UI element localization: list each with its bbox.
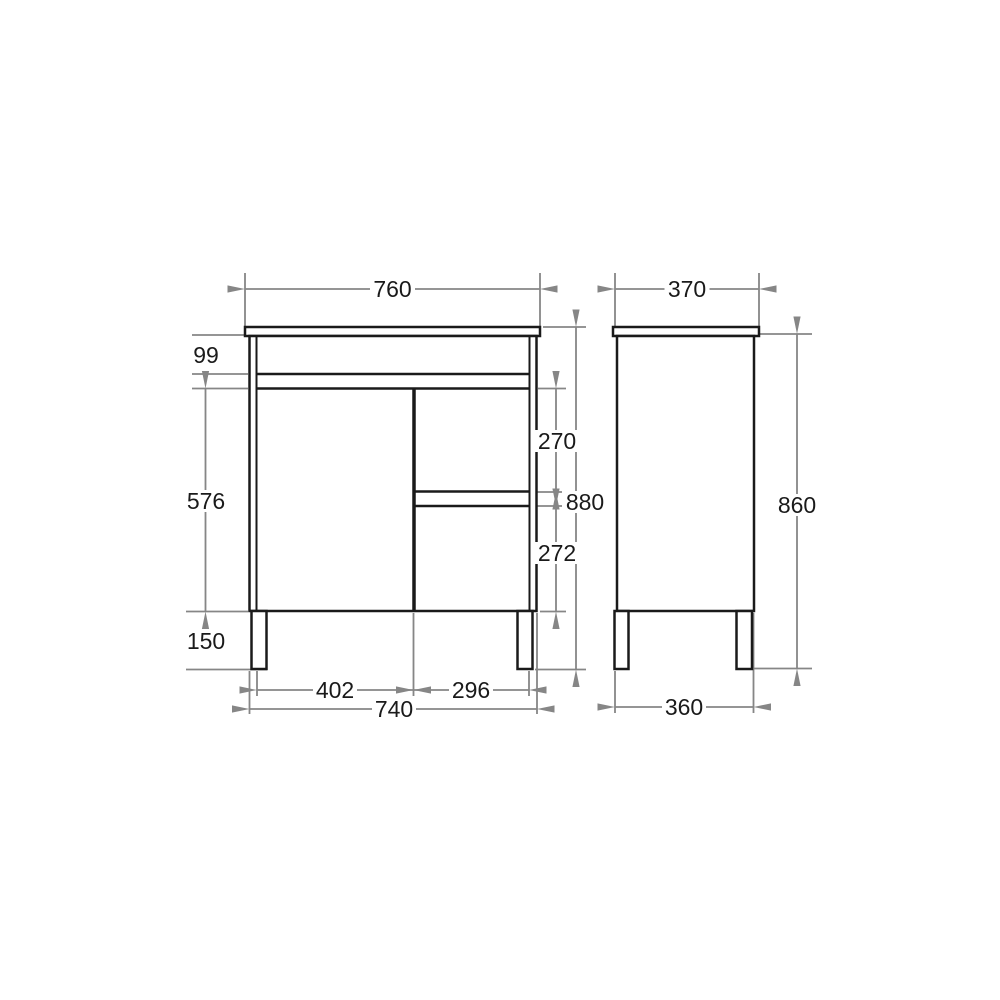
side-countertop [613, 327, 759, 336]
front-left-leg [252, 611, 267, 669]
front-top-drawer-height-label: 270 [538, 428, 576, 454]
front-top-rail-height-label: 99 [193, 342, 219, 368]
front-leg-height-label: 150 [187, 628, 225, 654]
drawing-canvas: 760 370 99 576 150 270 272 880 402 296 7… [0, 0, 1000, 1000]
side-view [613, 327, 759, 669]
vanity-dimension-diagram: 760 370 99 576 150 270 272 880 402 296 7… [0, 0, 1000, 1000]
side-front-leg [615, 611, 629, 669]
side-base-depth-label: 360 [665, 694, 703, 720]
front-door-height-label: 576 [187, 488, 225, 514]
front-cabinet-width-label: 740 [375, 696, 413, 722]
side-cabinet-body [617, 336, 754, 611]
front-bottom-drawer-height-label: 272 [538, 540, 576, 566]
side-cabinet-height-label: 860 [778, 492, 816, 518]
side-top-depth-label: 370 [668, 276, 706, 302]
front-countertop [245, 327, 540, 336]
front-view [245, 327, 540, 669]
front-top-width-label: 760 [373, 276, 411, 302]
front-overall-height-label: 880 [566, 489, 604, 515]
front-cabinet-body [250, 336, 537, 611]
front-door-width-label: 402 [316, 677, 354, 703]
front-drawer-width-label: 296 [452, 677, 490, 703]
front-right-leg [518, 611, 533, 669]
side-back-leg [737, 611, 753, 669]
